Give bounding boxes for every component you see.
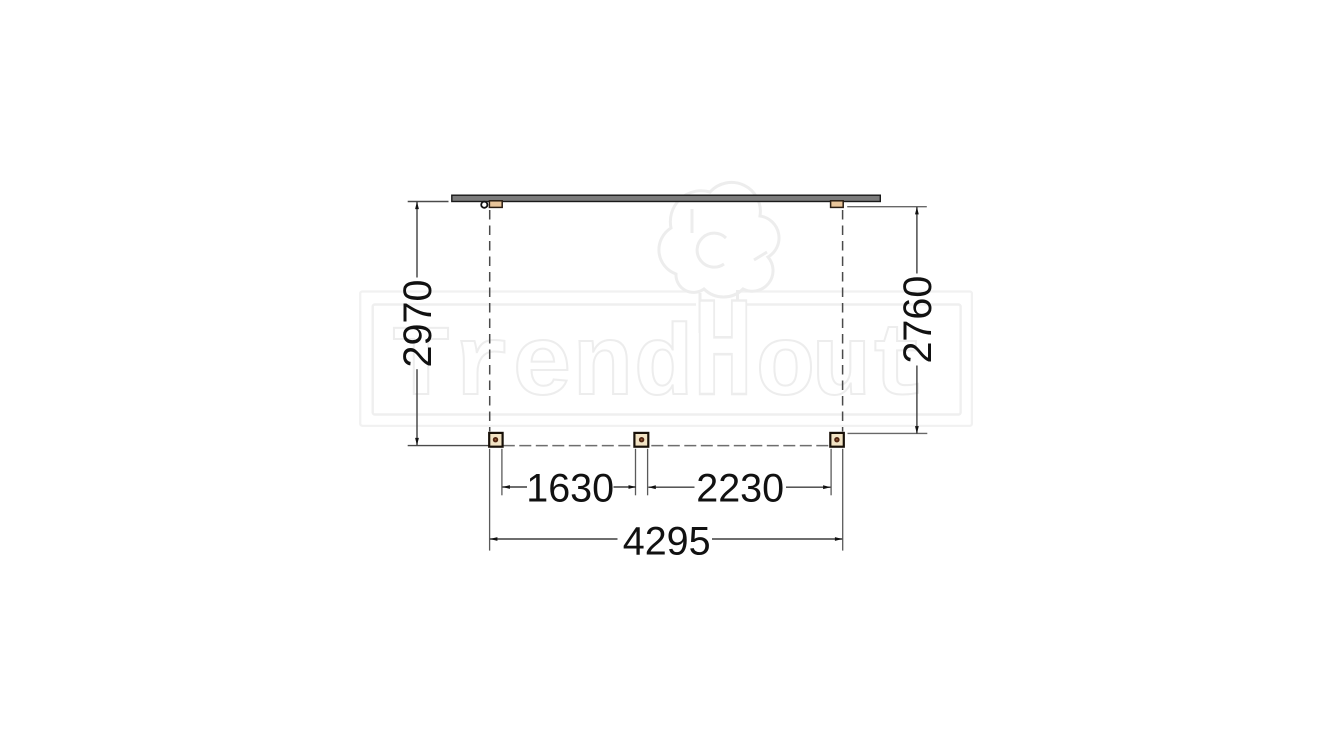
- svg-text:4295: 4295: [623, 519, 711, 563]
- svg-text:2970: 2970: [396, 280, 440, 368]
- svg-text:H: H: [693, 276, 753, 437]
- svg-text:2760: 2760: [896, 276, 940, 364]
- svg-text:2230: 2230: [696, 467, 784, 511]
- svg-text:1630: 1630: [526, 466, 614, 510]
